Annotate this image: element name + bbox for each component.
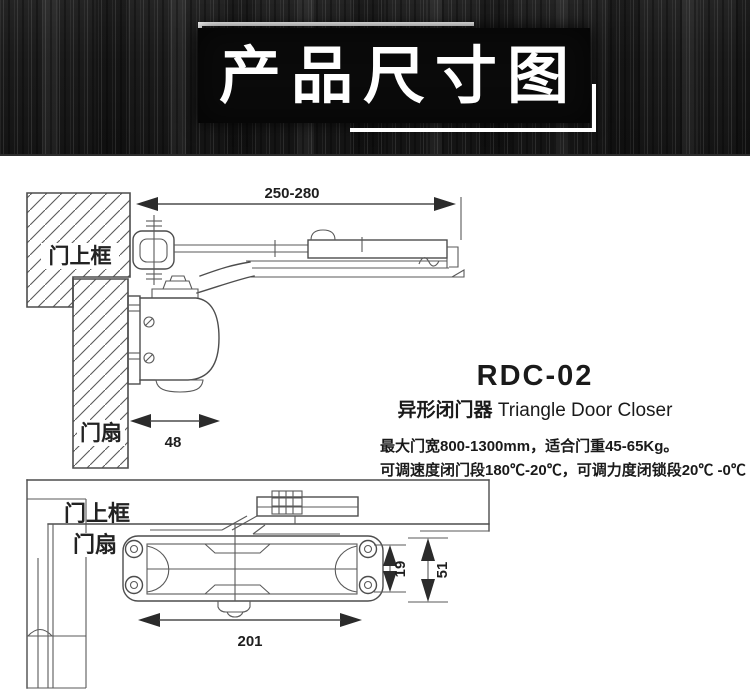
boss-base (152, 289, 198, 298)
screw-hole-icon (365, 546, 372, 553)
closer-body-side (128, 296, 219, 392)
dim-body-length: 201 (138, 613, 362, 650)
arm-diagonal (253, 525, 265, 534)
arrowhead-right-icon (199, 414, 220, 428)
product-specs: 最大门宽800-1300mm，适合门重45-65Kg。 可调速度闭门段180℃-… (380, 435, 690, 483)
corner-bracket-bottom-right-decoration (350, 84, 596, 132)
dim-label-body-height: 51 (434, 562, 451, 579)
arrowhead-right-icon (340, 613, 362, 627)
slide-rail-front (257, 491, 358, 524)
screw-hole-icon (360, 541, 377, 558)
label-door-top-frame: 门上框 (64, 501, 130, 526)
forearm-curve (197, 276, 254, 293)
closer-body-front (123, 525, 383, 617)
arm-bracket (133, 215, 174, 285)
arrowhead-right-icon (434, 197, 456, 211)
main-arm-rod (174, 230, 447, 258)
adjust-nut (311, 230, 335, 240)
arrowhead-left-icon (138, 613, 160, 627)
dim-arm-length: 250-280 (136, 185, 461, 240)
screw-hole-icon (126, 577, 143, 594)
screw-hole-icon (365, 582, 372, 589)
rail-clamp (272, 491, 302, 514)
dim-label-body-length: 201 (237, 633, 262, 650)
forearm-curve (200, 262, 250, 276)
label-door-leaf: 门扇 (80, 421, 122, 445)
screw-hole-icon (126, 541, 143, 558)
pinion-tab-dome (227, 612, 243, 617)
dim-hole-spacing: 19 (374, 545, 409, 592)
notch-top (205, 544, 270, 553)
mount-plate (128, 296, 140, 384)
front-view-drawing: 201 19 51 (27, 480, 489, 688)
arm-front (150, 516, 340, 534)
product-model: RDC-02 (380, 362, 690, 391)
boss-cap (170, 276, 186, 281)
product-info: RDC-02 异形闭门器 Triangle Door Closer 最大门宽80… (380, 362, 690, 483)
pinion-tab (218, 601, 250, 612)
notch-bottom (205, 585, 270, 594)
arrowhead-up-icon (421, 538, 435, 561)
spec-line-1: 最大门宽800-1300mm，适合门重45-65Kg。 (380, 435, 690, 459)
body-outline (140, 298, 219, 380)
label-door-leaf: 门扇 (73, 532, 117, 557)
dim-label-hole-spacing: 19 (392, 561, 409, 578)
product-dimension-page: 产品尺寸图 250-280 (0, 0, 750, 691)
dim-label-body-depth: 48 (165, 434, 182, 451)
boss-step (163, 281, 192, 289)
channel-foot (452, 270, 464, 277)
screw-slot (145, 318, 153, 326)
arrowhead-left-icon (130, 414, 151, 428)
screw-hole-icon (131, 546, 138, 553)
screw-hole-icon (131, 582, 138, 589)
slide-channel (197, 247, 464, 293)
rod-body (308, 240, 447, 258)
arrowhead-left-icon (136, 197, 158, 211)
product-name-en: Triangle Door Closer (498, 400, 673, 421)
channel-hook (447, 247, 458, 267)
screw-hole-icon (360, 577, 377, 594)
channel-wave (419, 258, 439, 266)
banner: 产品尺寸图 (0, 0, 750, 156)
valve-foot (156, 380, 203, 392)
label-door-top-frame: 门上框 (49, 244, 112, 268)
product-name: 异形闭门器 Triangle Door Closer (380, 395, 690, 422)
dim-body-height: 51 (408, 538, 451, 602)
dim-body-depth: 48 (130, 414, 220, 451)
arm-diagonal (232, 516, 257, 530)
product-name-cn: 异形闭门器 (398, 400, 493, 421)
arrowhead-down-icon (421, 579, 435, 602)
screw-slot (145, 354, 153, 362)
dim-label-arm-length: 250-280 (264, 185, 319, 202)
spec-line-2: 可调速度闭门段180℃-20℃，可调力度闭锁段20℃ -0℃ 。 (380, 459, 690, 483)
